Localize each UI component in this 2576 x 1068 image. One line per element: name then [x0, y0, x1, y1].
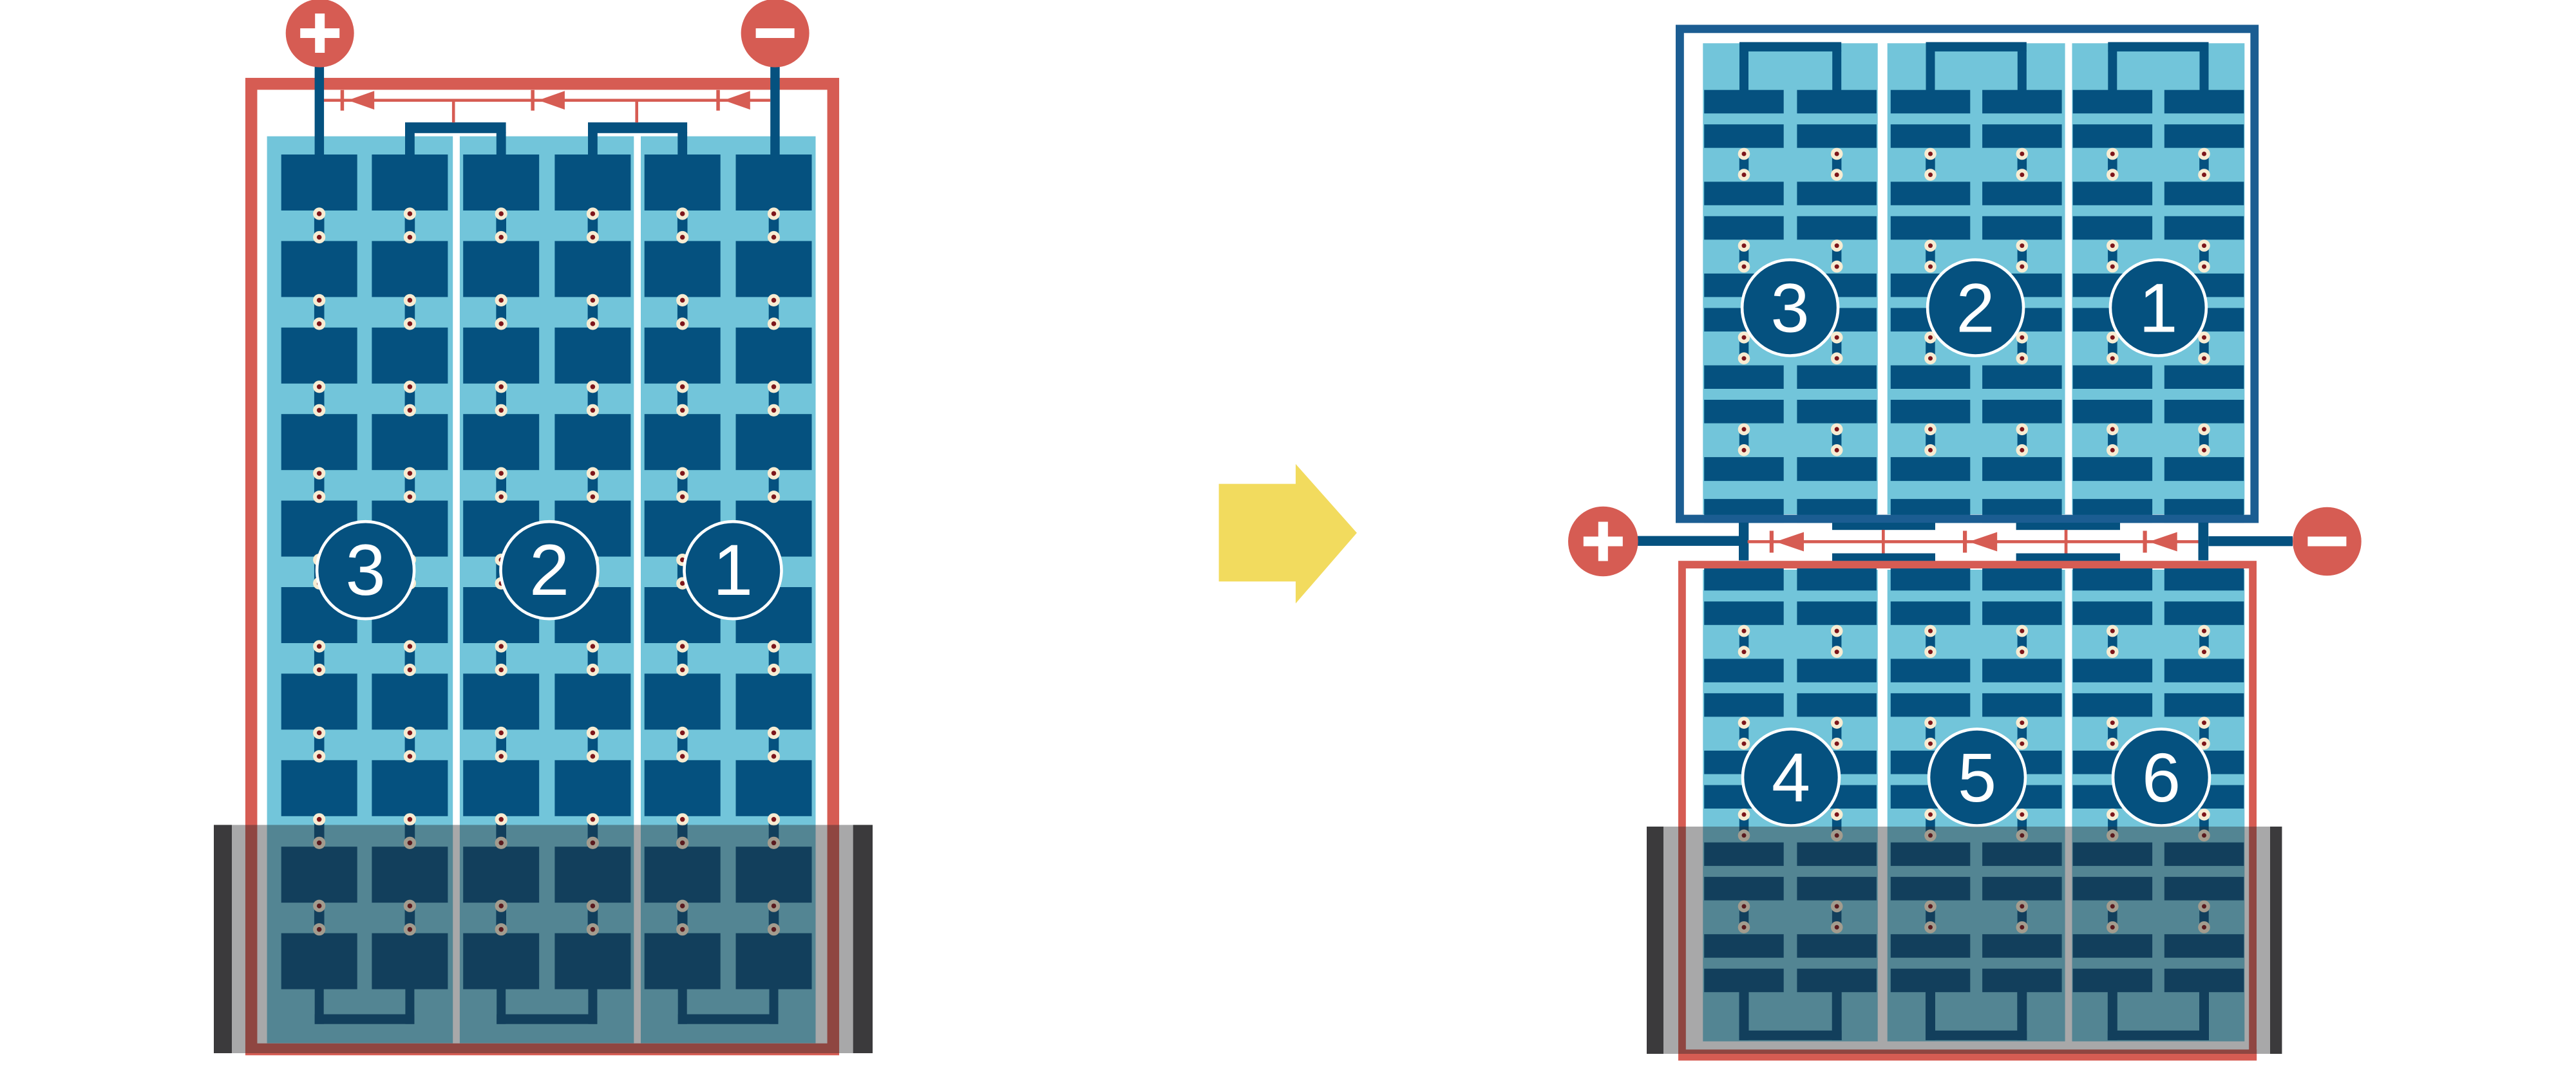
svg-text:5: 5: [1958, 738, 1996, 816]
svg-text:3: 3: [1771, 269, 1810, 347]
svg-text:4: 4: [1772, 738, 1810, 816]
svg-text:1: 1: [713, 530, 753, 610]
svg-text:1: 1: [2139, 269, 2177, 347]
svg-text:2: 2: [529, 530, 569, 610]
svg-text:6: 6: [2142, 738, 2181, 816]
svg-text:3: 3: [345, 530, 385, 610]
svg-text:2: 2: [1956, 269, 1995, 347]
